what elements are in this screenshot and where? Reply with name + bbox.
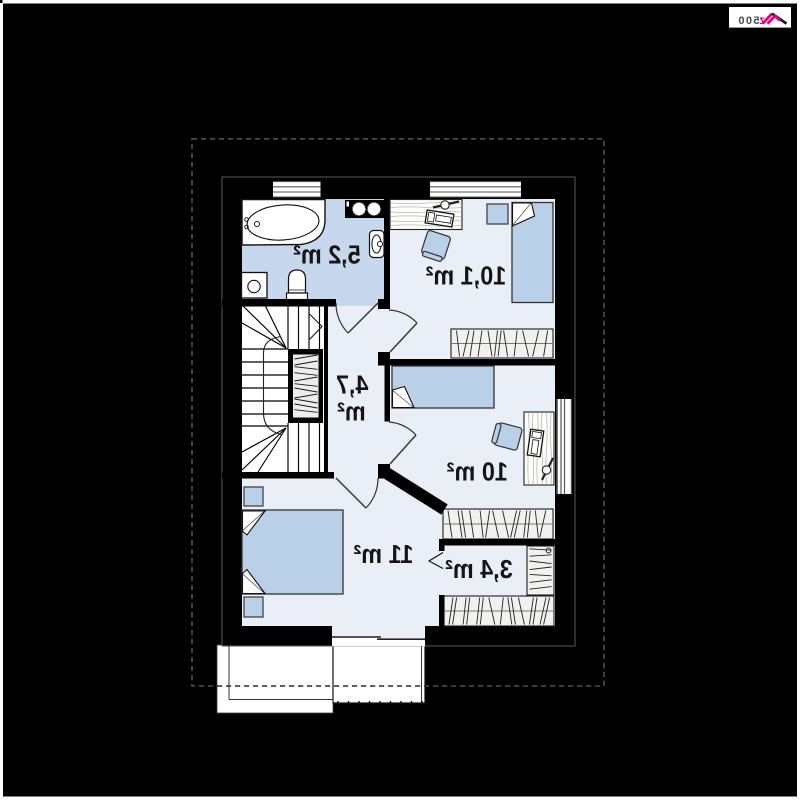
svg-text:4,7: 4,7 [336, 371, 369, 399]
svg-text:10 m²: 10 m² [447, 458, 508, 486]
svg-text:10,1 m²: 10,1 m² [426, 262, 507, 290]
svg-text:500: 500 [737, 15, 760, 27]
svg-text:11 m²: 11 m² [354, 541, 414, 569]
svg-text:m²: m² [337, 398, 366, 426]
svg-text:5,2 m²: 5,2 m² [293, 241, 361, 269]
svg-text:3,4 m²: 3,4 m² [445, 556, 513, 584]
